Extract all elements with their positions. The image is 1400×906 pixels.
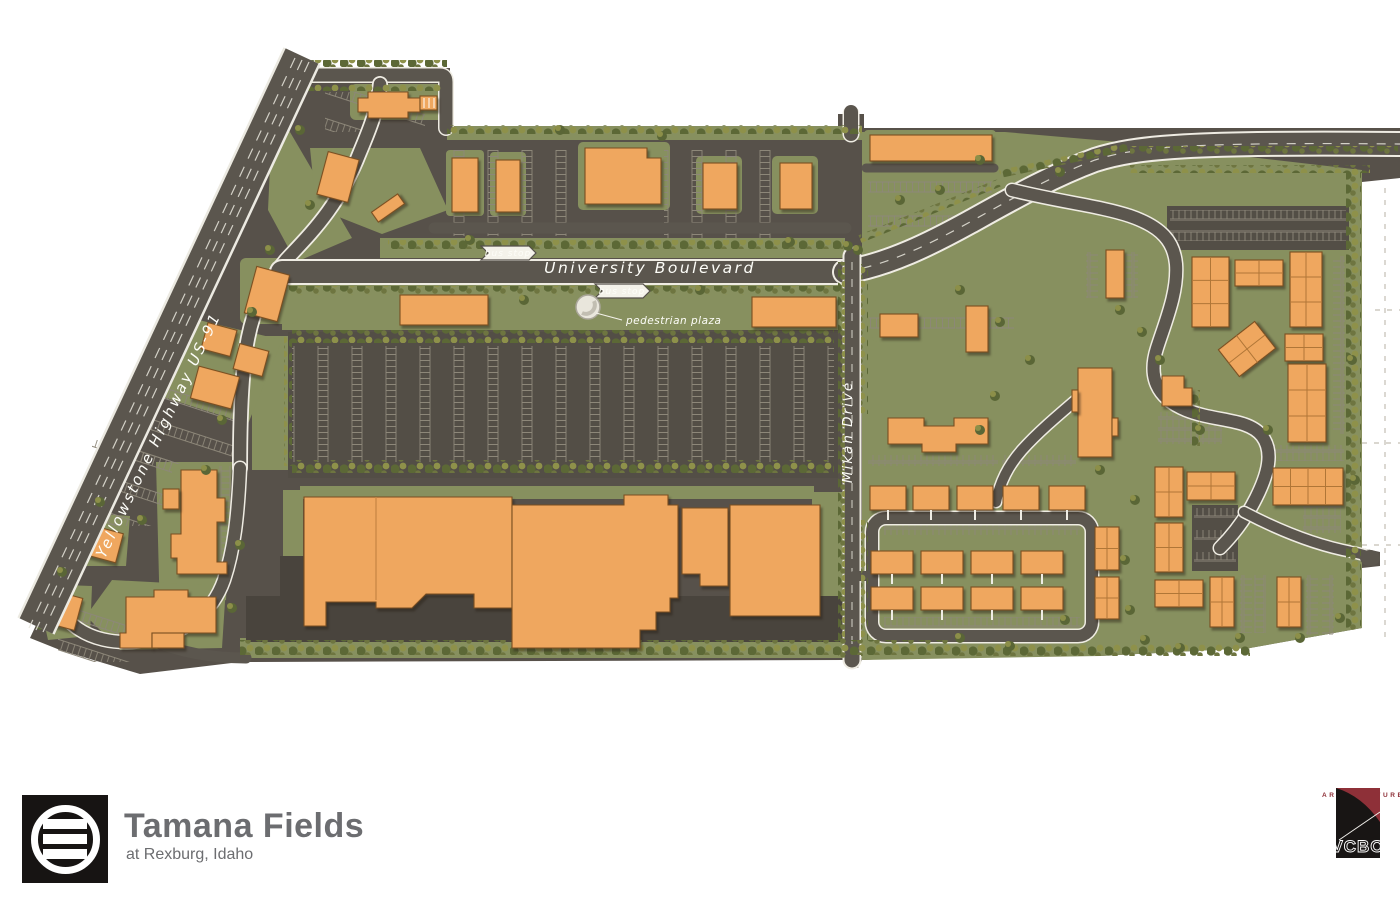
building	[163, 489, 179, 509]
building	[913, 486, 949, 510]
pedestrian-plaza-label: pedestrian plaza	[625, 315, 721, 327]
vcbo-logo-icon: VCBO	[1322, 788, 1394, 866]
building	[957, 486, 993, 510]
building	[752, 297, 836, 327]
building	[780, 163, 812, 209]
building	[1021, 551, 1063, 574]
tamana-fields-logo-icon	[22, 795, 108, 883]
building	[682, 508, 728, 586]
building	[1049, 486, 1085, 510]
parking-lot	[1126, 252, 1138, 298]
parking-lot	[1333, 256, 1345, 434]
parking-lot	[884, 617, 1080, 628]
tree-row	[292, 330, 834, 343]
building	[971, 587, 1013, 610]
mikan-drive-label: Mikan Drive	[840, 381, 856, 483]
building	[512, 495, 678, 648]
parking-lot	[1254, 575, 1266, 633]
building	[1106, 250, 1124, 298]
building	[966, 306, 988, 352]
building	[1003, 486, 1039, 510]
building	[880, 314, 918, 337]
building	[400, 295, 488, 325]
university-boulevard-label: University Boulevard	[544, 259, 756, 277]
parking-lot	[1322, 575, 1334, 635]
site-plan-page: bus stop bus stop pedestrian plaza Unive…	[0, 0, 1400, 906]
building	[1021, 587, 1063, 610]
building	[496, 160, 520, 212]
parking-lot	[868, 455, 998, 466]
building	[871, 587, 913, 610]
parking-lot	[1303, 503, 1341, 533]
project-title: Tamana Fields	[124, 809, 364, 843]
building	[971, 551, 1013, 574]
bus-stop-sign-north: bus stop	[481, 246, 536, 260]
building	[921, 551, 963, 574]
building	[921, 587, 963, 610]
building	[452, 158, 478, 212]
building	[1078, 368, 1112, 457]
site-plan-rendering: bus stop bus stop pedestrian plaza Unive…	[0, 0, 1400, 906]
parking-lot	[1086, 252, 1098, 298]
parking-lot	[1170, 230, 1346, 241]
parking-lot	[1270, 445, 1344, 461]
bus-stop-label: bus stop	[485, 249, 531, 259]
bus-stop-sign-south: bus stop	[595, 284, 650, 298]
architecture-firm-brand: VCBO ARCHITECTURE	[1322, 788, 1394, 799]
project-brand: Tamana Fields at Rexburg, Idaho	[22, 795, 364, 883]
building	[730, 505, 820, 616]
building	[870, 135, 992, 161]
building	[703, 163, 737, 209]
parking-lot	[884, 524, 1080, 535]
parking-lot	[292, 346, 834, 462]
building	[152, 633, 184, 648]
parking-lot	[1170, 210, 1346, 221]
project-location: at Rexburg, Idaho	[126, 846, 364, 864]
parking-lot	[1306, 575, 1318, 635]
building	[871, 551, 913, 574]
tree-row	[292, 460, 834, 473]
building	[870, 486, 906, 510]
bus-stop-label: bus stop	[599, 287, 645, 297]
parking-lot	[1194, 508, 1236, 518]
property-line	[1362, 188, 1400, 642]
firm-name: VCBO	[1331, 837, 1384, 856]
parking-lot	[1240, 575, 1252, 633]
